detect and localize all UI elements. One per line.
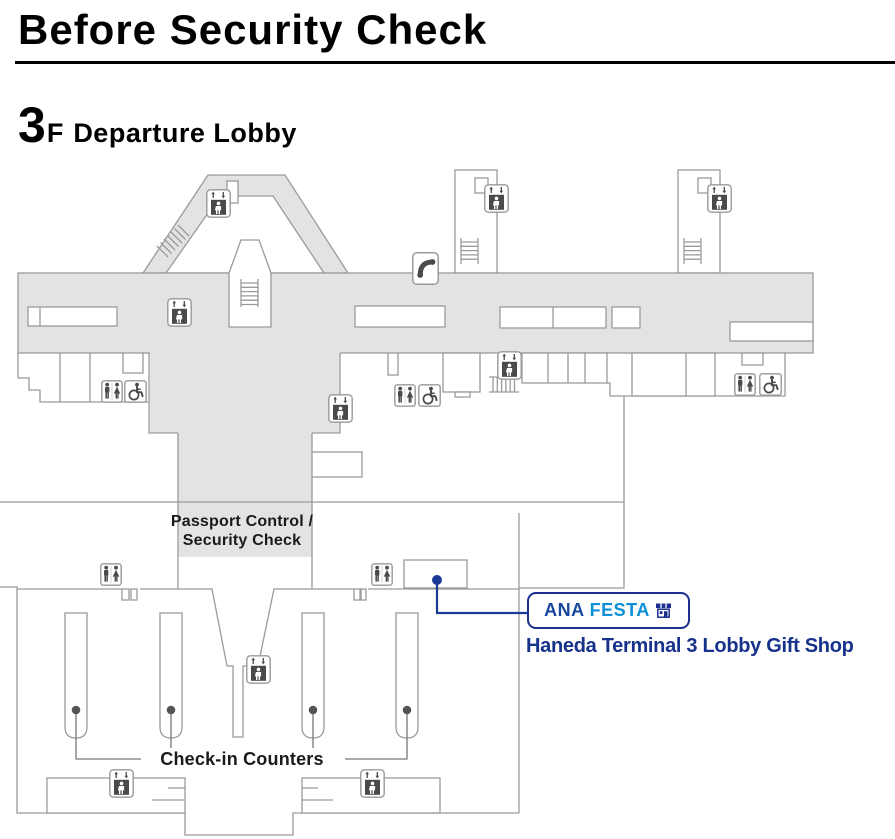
phone-icon <box>412 252 439 285</box>
restroom-icon <box>394 384 416 407</box>
floor-suffix: F <box>47 118 64 149</box>
wheelchair-icon <box>124 380 147 403</box>
floor-heading: 3 F Departure Lobby <box>18 96 297 154</box>
restroom-icon <box>100 563 122 586</box>
elevator-icon <box>707 184 732 213</box>
passport-control-label: Passport Control / Security Check <box>130 512 354 550</box>
ana-festa-logo-ana: ANA <box>544 600 585 621</box>
restroom-icon <box>101 380 123 403</box>
passport-control-line2: Security Check <box>130 531 354 550</box>
elevator-icon <box>167 298 192 327</box>
page-title: Before Security Check <box>0 0 895 59</box>
restroom-icon <box>371 563 393 586</box>
passport-control-line1: Passport Control / <box>130 512 354 531</box>
gift-shop-caption: Haneda Terminal 3 Lobby Gift Shop <box>526 635 854 658</box>
elevator-icon <box>109 769 134 798</box>
floor-name: Departure Lobby <box>73 118 297 149</box>
title-underline <box>15 61 895 64</box>
page-header: Before Security Check <box>0 0 895 64</box>
elevator-icon <box>484 184 509 213</box>
elevator-icon <box>328 394 353 423</box>
wheelchair-icon <box>759 373 782 396</box>
storefront-icon <box>655 602 673 619</box>
floor-number: 3 <box>18 96 46 154</box>
elevator-icon <box>206 189 231 218</box>
ana-festa-logo-festa: FESTA <box>590 600 650 621</box>
wheelchair-icon <box>418 384 441 407</box>
checkin-counters-label: Check-in Counters <box>132 749 352 770</box>
elevator-icon <box>246 655 271 684</box>
elevator-icon <box>497 351 522 380</box>
passport-control-area <box>149 352 362 589</box>
restroom-icon <box>734 373 756 396</box>
ana-festa-logo-badge: ANA FESTA <box>527 592 690 629</box>
elevator-icon <box>360 769 385 798</box>
